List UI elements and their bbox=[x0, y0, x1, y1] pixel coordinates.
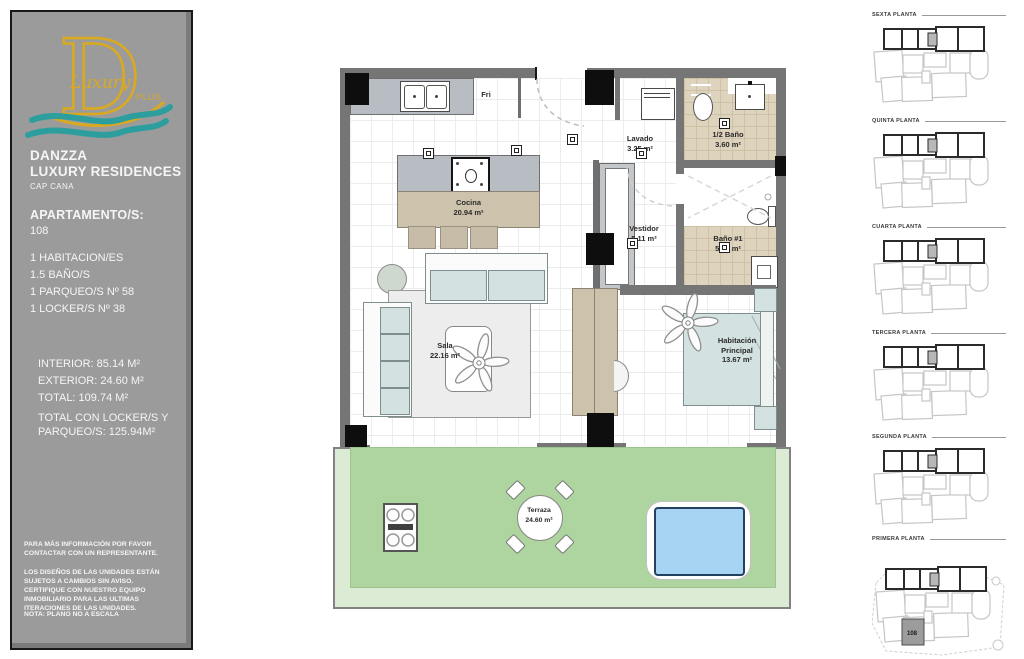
building-floor-levels: SEXTA PLANTA QUINTA PLANTA CUARTA PLANTA… bbox=[872, 0, 1012, 659]
label-rule bbox=[922, 15, 1006, 16]
shower-glass-icon bbox=[688, 176, 771, 218]
floor-level-plan bbox=[872, 127, 1000, 215]
floor-level-primera: PRIMERA PLANTA 108 bbox=[872, 536, 1006, 657]
feature-bedrooms: 1 HABITACION/ES bbox=[30, 250, 123, 267]
apartment-label: APARTAMENTO/S: bbox=[30, 208, 144, 222]
area-interior: INTERIOR: 85.14 M² bbox=[38, 356, 140, 373]
legal-note: NOTA: PLANO NO A ESCALA bbox=[24, 610, 176, 619]
room-label-terraza: Terraza 24.60 m² bbox=[513, 506, 565, 525]
floor-level-label: CUARTA PLANTA bbox=[872, 224, 922, 230]
danzza-logo: D Luxury PLUS bbox=[24, 16, 176, 148]
brand-title-line1: DANZZA bbox=[30, 148, 87, 164]
floor-level-label: QUINTA PLANTA bbox=[872, 118, 920, 124]
floor-level-cuarta: CUARTA PLANTA bbox=[872, 224, 1006, 321]
floor-level-tercera: TERCERA PLANTA bbox=[872, 330, 1006, 427]
area-total-locker-line2: PARQUEO/S: 125.94M² bbox=[38, 424, 155, 441]
area-total: TOTAL: 109.74 M² bbox=[38, 390, 128, 407]
label-rule bbox=[931, 333, 1006, 334]
logo-word: Luxury bbox=[69, 73, 131, 93]
feature-locker: 1 LOCKER/S Nº 38 bbox=[30, 301, 125, 318]
floor-level-label: SEGUNDA PLANTA bbox=[872, 434, 927, 440]
landscape-circle bbox=[992, 577, 1000, 585]
legal-disclaimer: LOS DISEÑOS DE LAS UNIDADES ESTÁN SUJETO… bbox=[24, 568, 176, 613]
floor-level-sexta: SEXTA PLANTA bbox=[872, 12, 1006, 109]
feature-parking: 1 PARQUEO/S Nº 58 bbox=[30, 284, 134, 301]
brochure-page: D Luxury PLUS DANZZA LUXURY RESIDENCES C… bbox=[0, 0, 1024, 659]
feature-bathrooms: 1.5 BAÑO/S bbox=[30, 267, 90, 284]
floor-level-plan bbox=[872, 443, 1000, 527]
plunge-pool bbox=[654, 507, 745, 576]
area-exterior: EXTERIOR: 24.60 M² bbox=[38, 373, 144, 390]
floor-level-plan bbox=[872, 233, 1000, 321]
bbq-grill-icon bbox=[383, 503, 418, 552]
logo-plus: PLUS bbox=[136, 92, 162, 102]
legal-contact: PARA MÁS INFORMACIÓN POR FAVOR CONTACTAR… bbox=[24, 540, 176, 558]
floor-level-segunda: SEGUNDA PLANTA bbox=[872, 434, 1006, 527]
floor-level-label: TERCERA PLANTA bbox=[872, 330, 926, 336]
door-swing-arc bbox=[537, 79, 584, 126]
door-swing-arc bbox=[627, 168, 672, 206]
floor-level-plan bbox=[872, 339, 1000, 427]
floor-level-label: SEXTA PLANTA bbox=[872, 12, 917, 18]
floor-level-label: PRIMERA PLANTA bbox=[872, 536, 925, 542]
brand-title-line2: LUXURY RESIDENCES bbox=[30, 164, 181, 180]
terraza-name: Terraza bbox=[527, 507, 551, 514]
floor-level-plan bbox=[872, 21, 1000, 109]
label-rule bbox=[925, 121, 1006, 122]
landscape-circle bbox=[993, 640, 1003, 650]
apartment-number: 108 bbox=[30, 223, 48, 240]
shower-head-icon bbox=[765, 194, 771, 200]
brand-location: CAP CANA bbox=[30, 182, 74, 191]
label-rule bbox=[932, 437, 1006, 438]
floor-level-quinta: QUINTA PLANTA bbox=[872, 118, 1006, 215]
label-rule bbox=[927, 227, 1006, 228]
label-rule bbox=[930, 539, 1006, 540]
terraza-area: 24.60 m² bbox=[525, 517, 552, 524]
floor-level-plan-highlighted: 108 bbox=[872, 545, 1006, 657]
info-sidebar: D Luxury PLUS DANZZA LUXURY RESIDENCES C… bbox=[10, 10, 193, 650]
highlighted-unit-number: 108 bbox=[907, 631, 918, 637]
apartment-floorplan: Fri Cocina 20.94 m² Lavado 3.25 m² bbox=[331, 60, 791, 612]
